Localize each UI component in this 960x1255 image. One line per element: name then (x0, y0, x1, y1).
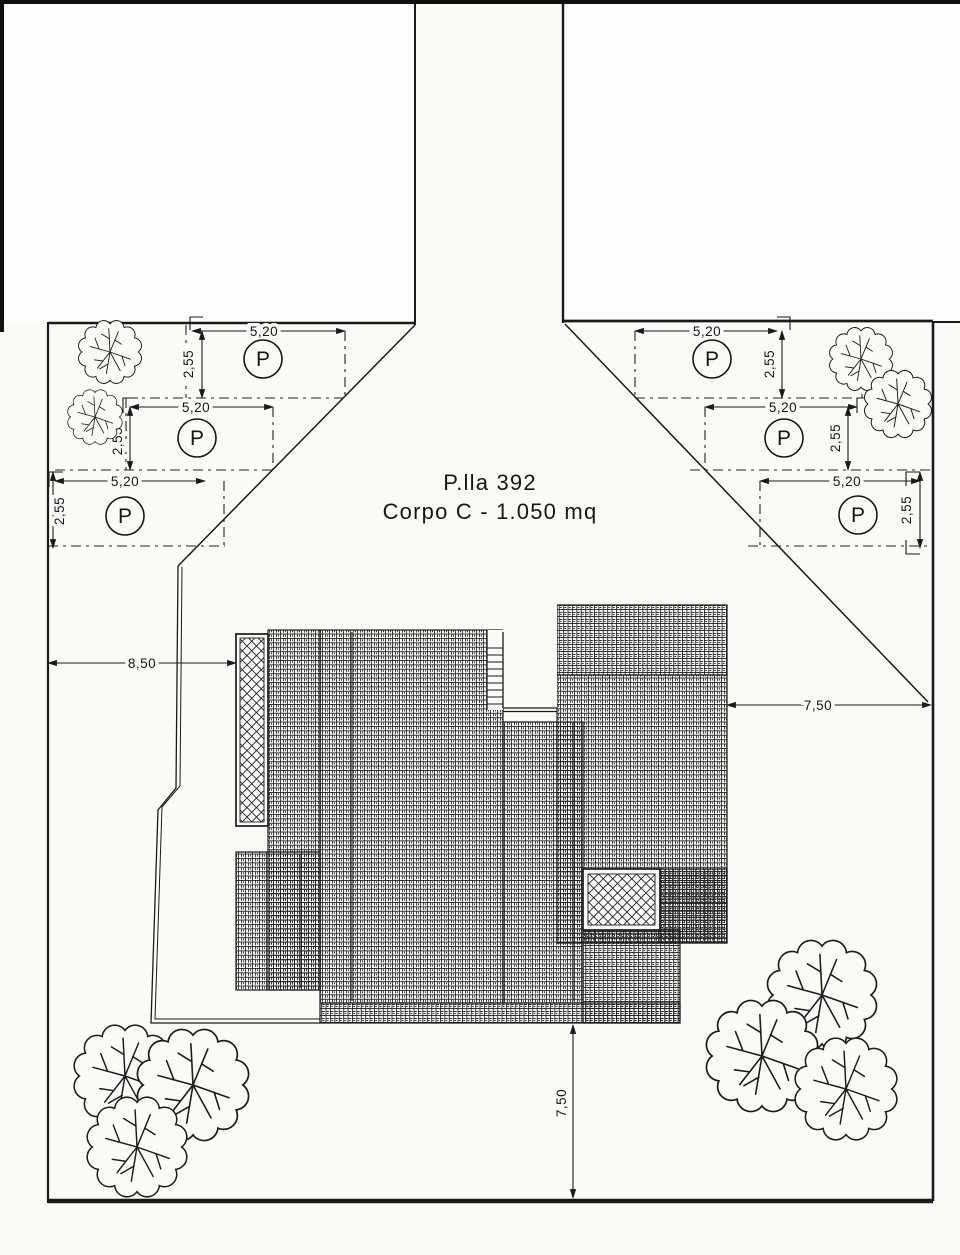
stall-width-dim: 5,20 (111, 474, 139, 489)
skylight-crosshatch (583, 869, 660, 930)
stall-width-dim: 5,20 (250, 324, 278, 339)
site-plan-page: 5,20 2,55 P 5,20 2,55 P 5,20 2,55 P (0, 0, 960, 1255)
parcel-title: P.lla 392 (443, 470, 537, 495)
parking-symbol: P (705, 348, 719, 371)
stall-width-dim: 5,20 (182, 400, 210, 415)
road-area-right (563, 0, 960, 323)
parking-symbol: P (851, 504, 865, 527)
setback-bottom-dim: 7,50 (554, 1089, 569, 1117)
roof-ridge-band (557, 605, 727, 675)
parking-symbol: P (777, 427, 791, 450)
stall-depth-dim: 2,55 (899, 496, 914, 524)
roof-eave-band (320, 1003, 680, 1023)
tree-icon (864, 370, 931, 437)
tree-icon (795, 1038, 897, 1140)
terrace-crosshatch (236, 634, 268, 826)
stall-depth-dim: 2,55 (762, 350, 777, 378)
stall-width-dim: 5,20 (693, 324, 721, 339)
stall-width-dim: 5,20 (769, 400, 797, 415)
road-area-left (4, 0, 415, 325)
tree-icon (87, 1097, 187, 1197)
setback-left-dim: 8,50 (128, 656, 156, 671)
stall-depth-dim: 2,55 (181, 350, 196, 378)
parking-symbol: P (256, 348, 270, 371)
site-plan-drawing: 5,20 2,55 P 5,20 2,55 P 5,20 2,55 P (0, 0, 960, 1255)
building-roof (236, 596, 727, 1023)
tree-icon (79, 321, 142, 384)
setback-right-dim: 7,50 (804, 698, 832, 713)
tree-icon (68, 390, 123, 445)
stall-depth-dim: 2,55 (52, 497, 67, 525)
stall-depth-dim: 2,55 (828, 424, 843, 452)
parking-symbol: P (118, 505, 132, 528)
parcel-subtitle: Corpo C - 1.050 mq (383, 499, 598, 524)
roof-block (320, 630, 503, 1003)
roof-block (236, 852, 320, 990)
stall-width-dim: 5,20 (833, 474, 861, 489)
parking-symbol: P (190, 427, 204, 450)
